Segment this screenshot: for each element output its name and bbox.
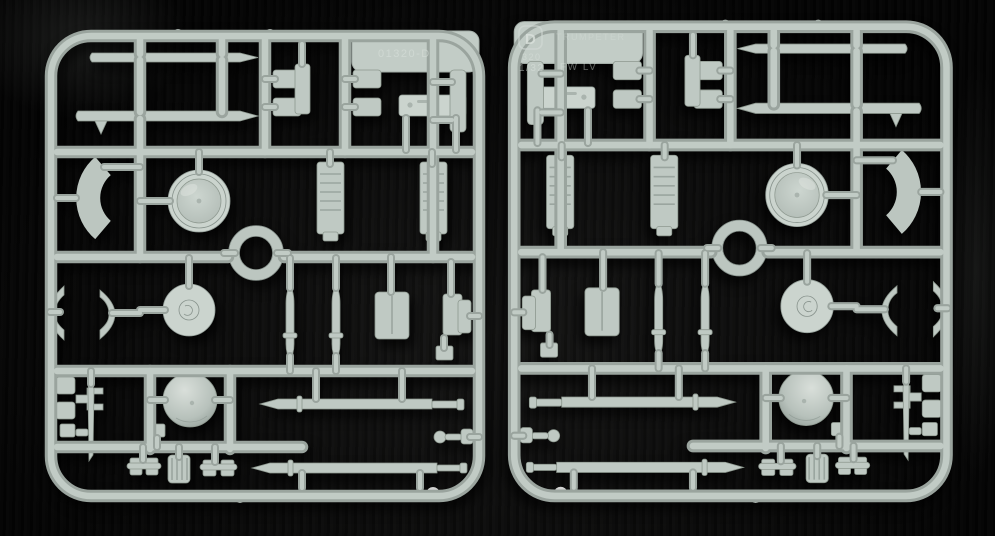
subject-text: FW LV — [560, 62, 597, 73]
sprues-artwork: 01320-D D TRUMPETER 320 1/32 FW LV — [0, 0, 995, 536]
mold-number: 320 — [522, 52, 542, 62]
sprue-left — [45, 29, 485, 503]
photo-of-model-kit-sprues: 01320-D D TRUMPETER 320 1/32 FW LV — [0, 0, 995, 536]
scale-text: 1/32 — [519, 63, 544, 74]
sprue-letter: D — [525, 31, 537, 48]
brand-text: TRUMPETER — [556, 32, 626, 42]
left-sprue-mold-text: 01320-D — [378, 48, 431, 60]
sprue-right — [508, 20, 952, 503]
